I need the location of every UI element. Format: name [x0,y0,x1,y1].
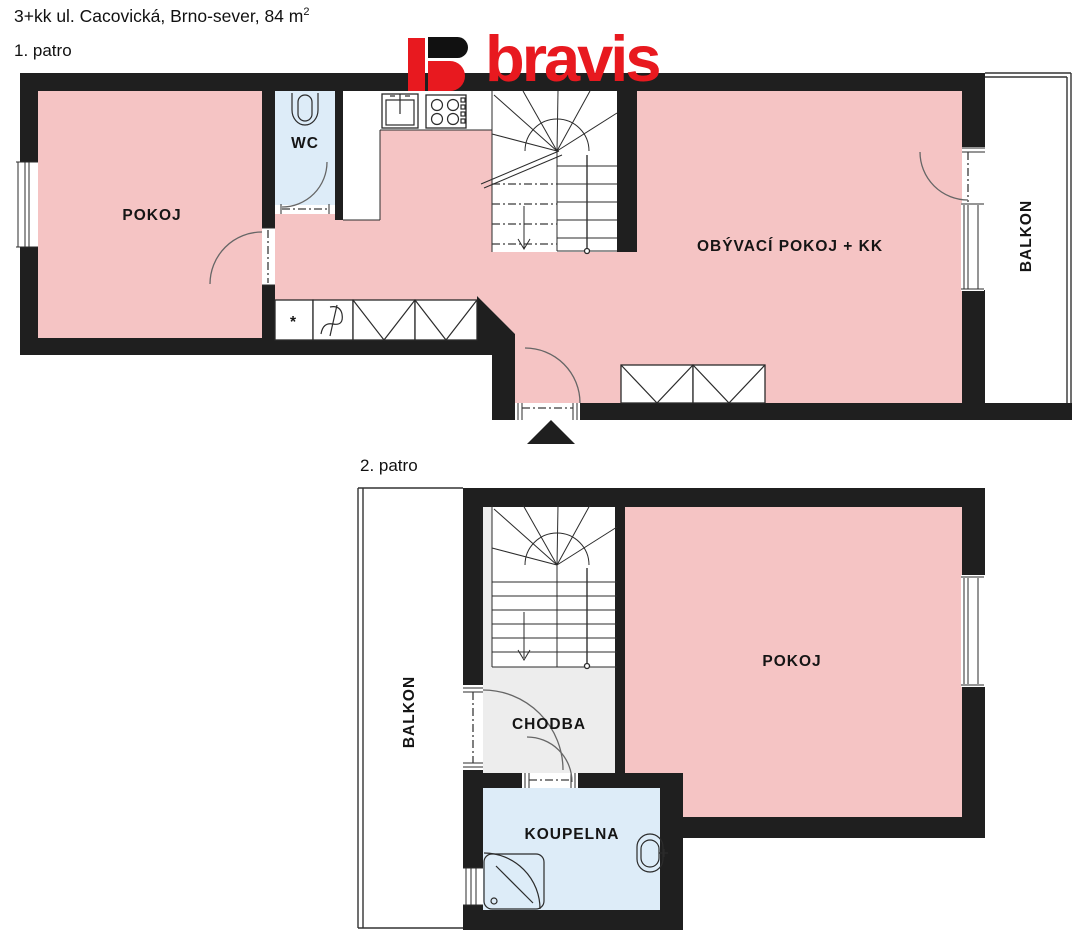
stairwell-floor2 [492,505,617,667]
window-koupelna [463,868,483,905]
floor1-plan: * [16,73,1072,444]
wardrobe-icon-living-2 [693,365,765,403]
label-balkon-floor2: BALKON [401,676,418,748]
stairs-floor1 [481,91,617,254]
entrance-arrow-icon [527,420,575,444]
label-pokoj-floor1: POKOJ [122,207,181,224]
wardrobe-icon-hall-2 [415,300,477,340]
room-koupelna [483,788,660,910]
floorplan-page: 3+kk ul. Cacovická, Brno-sever, 84 m2 1.… [0,0,1091,946]
sink-icon [382,94,418,128]
washer-mark: * [290,314,297,331]
label-balkon-floor1: BALKON [1018,200,1035,272]
stove-icon [426,95,466,128]
drain-icon [313,300,353,340]
wardrobe-icon-hall-1 [353,300,415,340]
floor2-plan: POKOJ CHODBA KOUPELNA BALKON [358,488,985,930]
wardrobe-icon-living-1 [621,365,693,403]
label-wc: WC [291,135,319,152]
window-pokoj-floor2 [961,575,984,687]
label-living: OBÝVACÍ POKOJ + KK [697,237,883,255]
window-living-floor1 [961,203,984,291]
label-pokoj-floor2: POKOJ [762,653,821,670]
floorplan-svg: * [0,0,1091,946]
label-koupelna: KOUPELNA [525,826,620,843]
window-pokoj-floor1 [16,162,38,247]
washing-machine-icon: * [275,300,313,340]
label-chodba: CHODBA [512,716,586,733]
